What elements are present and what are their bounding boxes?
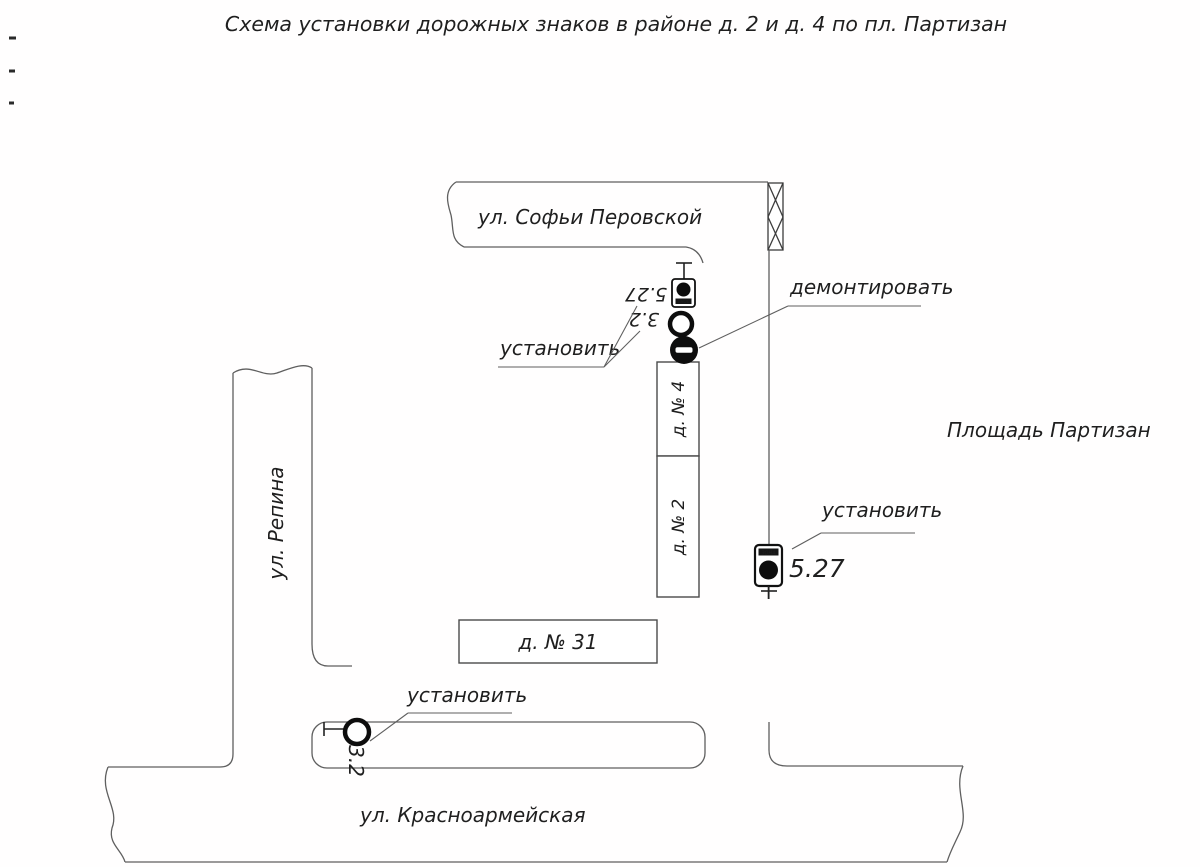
sign-527-top-banner: ЗОНА	[678, 298, 690, 303]
sign-32-bottom-code: 3.2	[344, 745, 368, 777]
sign-527-top-code: 5.27	[625, 283, 667, 305]
building-4-label: д. № 4	[669, 381, 689, 438]
annotation-dismantle: демонтировать	[789, 275, 954, 299]
sign-32-bottom-icon	[324, 720, 369, 744]
street-label-krasnoarmeyskaya: ул. Красноармейская	[359, 803, 586, 827]
sign-527-right-icon: ЗОНА	[755, 545, 782, 599]
scheme-page: Схема установки дорожных знаков в районе…	[0, 0, 1200, 867]
leader-install-right	[792, 533, 915, 549]
parking-pocket-right	[769, 722, 963, 766]
road-signs-scheme: Схема установки дорожных знаков в районе…	[0, 0, 1200, 867]
sign-32-top-icon	[670, 313, 692, 335]
leader-install-bottom	[370, 713, 512, 741]
sign-pole-top	[676, 263, 692, 280]
sign-527-right-banner: ЗОНА	[761, 550, 776, 556]
street-label-sofia-perovskoy: ул. Софьи Перовской	[477, 205, 702, 229]
sign-527-right-code: 5.27	[789, 554, 845, 583]
scan-artifacts	[9, 38, 16, 103]
parking-pocket-left	[312, 722, 705, 768]
annotation-install-bottom: установить	[406, 683, 527, 707]
building-2-label: д. № 2	[669, 499, 689, 556]
leader-dismantle	[699, 306, 921, 348]
square-label: Площадь Партизан	[947, 418, 1151, 442]
annotation-install-right: установить	[821, 498, 942, 522]
page-title: Схема установки дорожных знаков в районе…	[225, 12, 1007, 36]
hatched-gate-symbol	[768, 183, 783, 250]
street-label-repina: ул. Репина	[264, 466, 288, 580]
sign-527-top-icon: ЗОНА	[672, 279, 695, 307]
annotation-install-top: установить	[499, 336, 620, 360]
road-repina	[108, 366, 352, 767]
building-31-label: д. № 31	[517, 630, 597, 654]
sign-dismantle-icon	[670, 336, 698, 364]
sign-32-top-code: 3.2	[629, 308, 659, 330]
